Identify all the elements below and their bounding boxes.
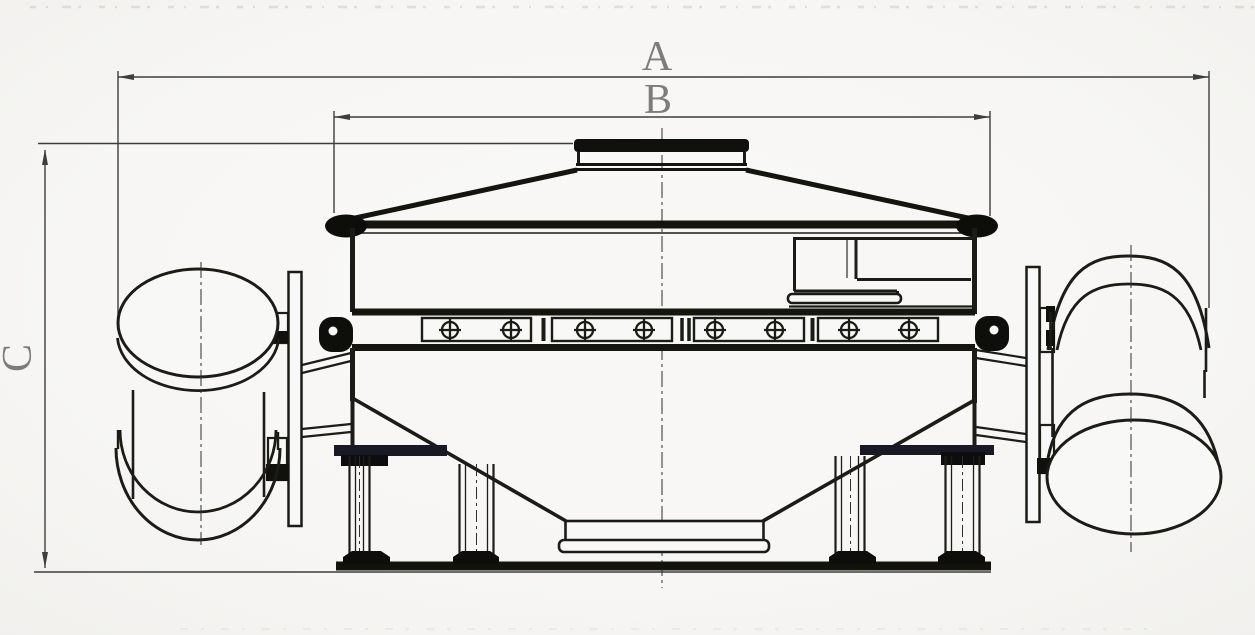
svg-text:B: B (644, 77, 672, 123)
svg-text:C: C (0, 344, 41, 372)
svg-text:A: A (642, 34, 673, 80)
